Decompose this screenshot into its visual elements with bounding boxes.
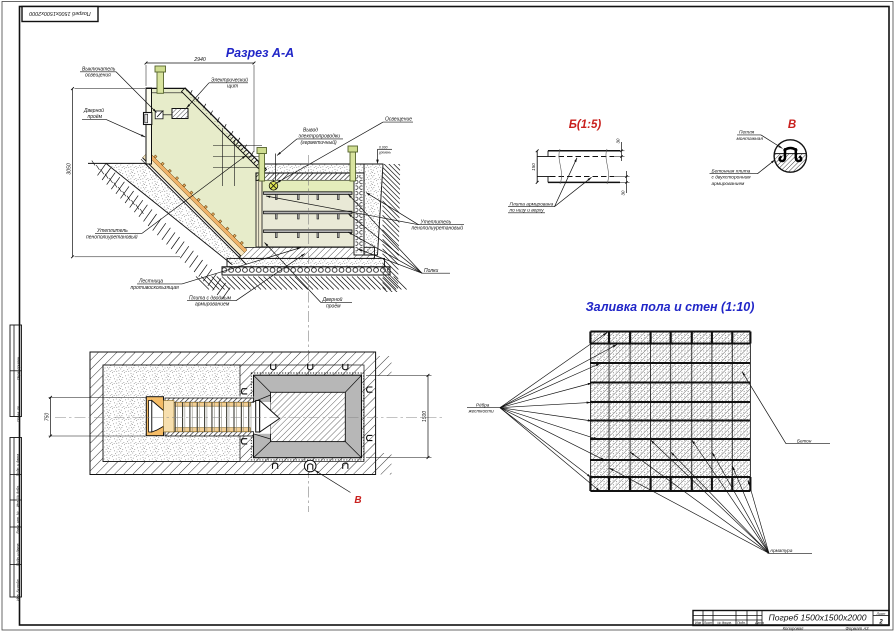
svg-text:уровень: уровень	[378, 151, 391, 155]
svg-text:Погреб 1500х1500х2000: Погреб 1500х1500х2000	[769, 613, 867, 623]
svg-text:щит: щит	[227, 84, 238, 90]
svg-text:Полки: Полки	[424, 268, 438, 274]
svg-text:противоскользящая: противоскользящая	[131, 285, 180, 291]
svg-text:0.000: 0.000	[379, 145, 388, 149]
svg-text:Перв. примен.: Перв. примен.	[17, 356, 21, 380]
svg-text:3050: 3050	[67, 163, 73, 175]
svg-text:В: В	[788, 119, 796, 131]
svg-text:30: 30	[615, 138, 620, 143]
svg-text:монтажная: монтажная	[737, 137, 764, 142]
svg-text:армированием: армированием	[712, 182, 746, 187]
svg-text:Взам. инв. №: Взам. инв. №	[16, 511, 20, 533]
svg-text:Копировал: Копировал	[783, 626, 804, 631]
svg-text:2: 2	[878, 620, 883, 626]
svg-text:пенополиуретановый: пенополиуретановый	[412, 225, 464, 232]
svg-text:150: 150	[531, 163, 536, 171]
svg-text:Формат А3: Формат А3	[846, 626, 870, 631]
svg-text:Заливка пола и стен (1:10): Заливка пола и стен (1:10)	[586, 300, 755, 314]
svg-text:Лист: Лист	[703, 621, 713, 625]
svg-text:750: 750	[45, 413, 51, 422]
svg-text:Лист: Лист	[876, 612, 886, 616]
svg-text:Дверной: Дверной	[322, 296, 343, 303]
svg-text:Подп. и дата: Подп. и дата	[16, 454, 20, 477]
svg-text:Изм: Изм	[695, 621, 702, 625]
svg-text:с двухсторонним: с двухсторонним	[712, 175, 752, 181]
svg-text:1500: 1500	[422, 411, 428, 422]
svg-text:Инв. № дубл.: Инв. № дубл.	[16, 485, 20, 507]
svg-text:Подп. и дата: Подп. и дата	[16, 544, 20, 567]
svg-text:Подп.: Подп.	[737, 621, 746, 625]
svg-text:Б(1:5): Б(1:5)	[569, 119, 602, 131]
svg-text:проём: проём	[326, 304, 341, 310]
svg-text:Арматура: Арматура	[769, 548, 793, 553]
svg-text:армированием: армированием	[195, 302, 230, 308]
svg-text:Справ. №: Справ. №	[17, 406, 21, 422]
svg-text:освещения: освещения	[85, 73, 111, 79]
svg-text:Инв. № подл.: Инв. № подл.	[16, 579, 20, 601]
svg-text:В: В	[354, 495, 361, 506]
svg-text:жесткости: жесткости	[468, 409, 495, 414]
svg-text:Вывод: Вывод	[303, 127, 318, 133]
svg-text:2940: 2940	[193, 57, 206, 63]
svg-text:Погреб 1500х1500х2000: Погреб 1500х1500х2000	[29, 10, 90, 16]
svg-text:Дата: Дата	[754, 621, 764, 625]
svg-text:Электрический: Электрический	[211, 77, 248, 84]
svg-text:№ докум.: № докум.	[717, 621, 732, 625]
svg-text:пенополиуретановый: пенополиуретановый	[86, 233, 138, 240]
svg-text:Бетон: Бетон	[797, 438, 812, 443]
svg-text:Разрез А-А: Разрез А-А	[226, 46, 294, 60]
svg-text:Рёбра: Рёбра	[476, 402, 490, 407]
svg-text:(герметичный): (герметичный)	[301, 139, 337, 146]
svg-text:Дверной: Дверной	[83, 107, 104, 114]
svg-text:Плита с двойным: Плита с двойным	[189, 294, 232, 301]
svg-text:30: 30	[621, 190, 626, 195]
